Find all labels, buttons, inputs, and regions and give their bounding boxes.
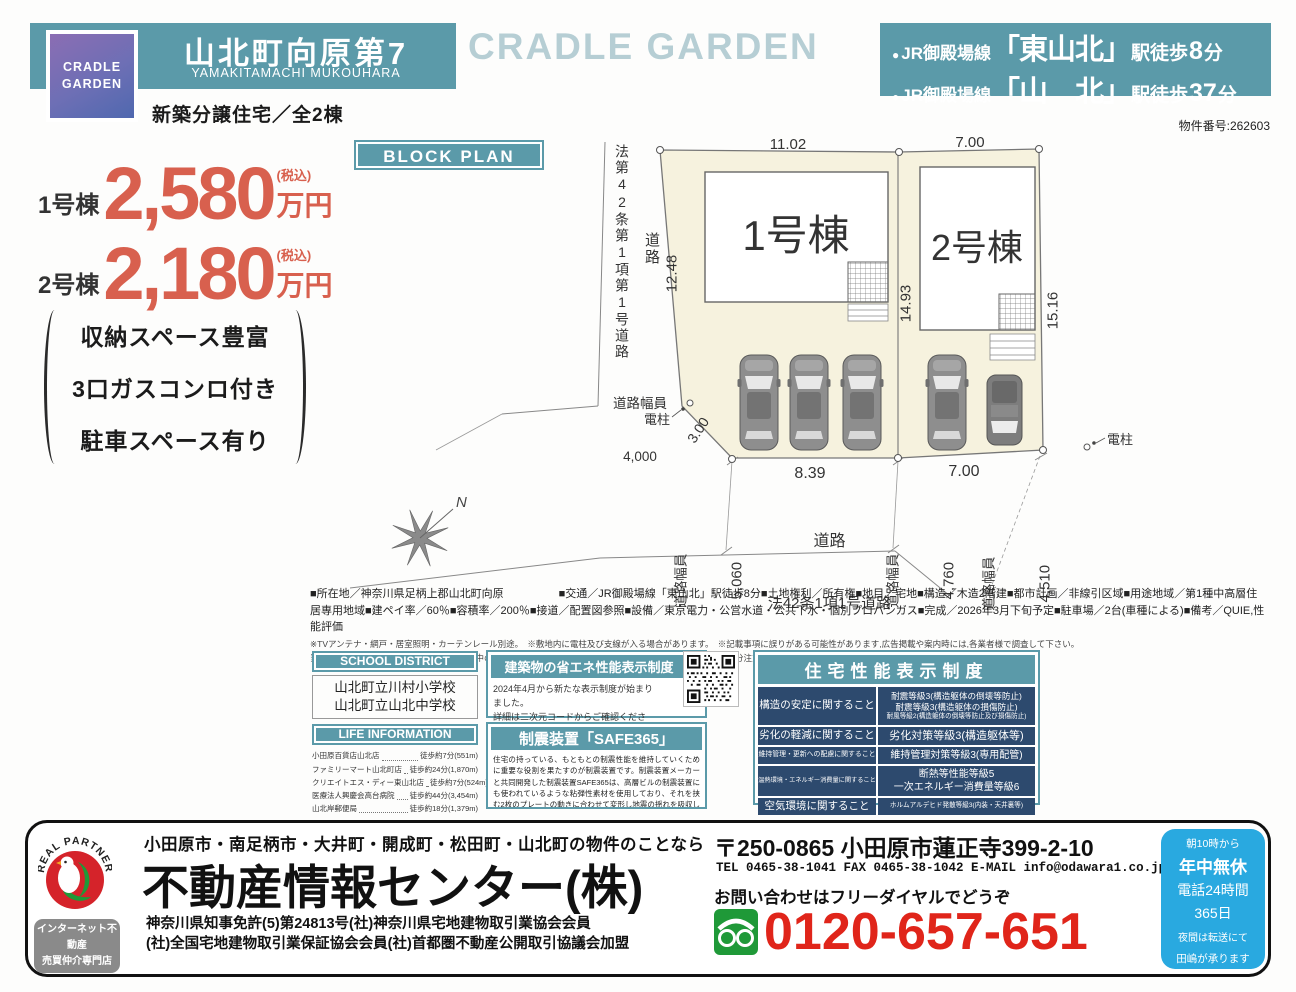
life-item-name: 山北岸郵便局: [312, 802, 357, 815]
life-item-value: 徒歩約7分(524m): [430, 776, 488, 789]
dotted-leader: [426, 786, 428, 787]
car-icon: [987, 375, 1022, 445]
performance-category: 空気環境に関すること: [758, 798, 876, 815]
page-title-romaji: YAMAKITAMACHI MUKOUHARA: [150, 66, 442, 80]
property-note-1: ※TVアンテナ・網戸・居室照明・カーテンレール別途。 ※敷地内に電柱及び支線が入…: [310, 638, 1268, 650]
cradle-garden-logo: CRADLE GARDEN: [46, 30, 138, 122]
seismic-device-body: 住宅の持っている、もともとの制震性能を維持していくために重要な役割を果たすのが制…: [488, 753, 705, 809]
flyer-page: CRADLE GARDEN 山北町向原第7 YAMAKITAMACHI MUKO…: [0, 0, 1296, 992]
building-2-label: 2号棟: [931, 227, 1023, 268]
features-box: 収納スペース豊富 3口ガスコンロ付き 駐車スペース有り: [44, 310, 306, 464]
dotted-leader: [404, 773, 408, 774]
utility-pole-right: [1084, 438, 1105, 450]
seismic-device-header: 制震装置「SAFE365」: [491, 727, 702, 750]
performance-value: 劣化対策等級3(構造躯体等): [878, 727, 1035, 745]
logo-text-line1: CRADLE: [63, 59, 121, 76]
performance-value: ホルムアルデヒド発散等級3(内装・天井裏等): [878, 798, 1035, 815]
company-name: 不動産情報センター(株): [142, 849, 643, 918]
life-information-list: 小田原百貨店山北店徒歩約7分(551m) ファミリーマート山北町店徒歩約24分(…: [312, 749, 478, 815]
dimension-14-93: 14.93: [898, 264, 915, 344]
life-item-name: 小田原百貨店山北店: [312, 749, 380, 762]
dimension-7-00-bottom: 7.00: [922, 463, 1006, 481]
life-item-value: 徒歩約18分(1,379m): [410, 802, 478, 815]
performance-category: 劣化の軽減に関すること: [758, 727, 876, 745]
dimension-11-02: 11.02: [745, 136, 831, 153]
dimension-8-39: 8.39: [768, 465, 852, 483]
life-item-value: 徒歩約24分(1,870m): [410, 763, 478, 776]
road-vertical-label: 道路: [641, 232, 662, 266]
property-number: 物件番号:262603: [1100, 117, 1270, 134]
access-line-1: ● JR御殿場線 「東山北」 駅徒歩 8 分: [892, 26, 1271, 68]
block-plan: 1号棟 2号棟: [350, 138, 1160, 598]
hours-line: 電話24時間: [1161, 880, 1265, 900]
tax-note: (税込): [277, 165, 312, 184]
logo-gradient-square: CRADLE GARDEN: [50, 34, 134, 118]
housing-performance-table: 構造の安定に関すること 耐震等級3(構造躯体の倒壊等防止) 耐震等級3(構造躯体…: [758, 687, 1035, 815]
life-item: 小田原百貨店山北店徒歩約7分(551m): [312, 749, 478, 762]
life-item-name: クリエイトエス・ディー東山北店: [312, 776, 424, 789]
building-2-porch-hatch: [999, 294, 1035, 330]
right-parenthesis: [285, 310, 306, 464]
life-item-value: 徒歩約44分(3,454m): [410, 789, 478, 802]
life-item-value: 徒歩約7分(551m): [420, 749, 478, 762]
school-district-box: SCHOOL DISTRICT 山北町立川村小学校 山北町立山北中学校 LIFE…: [312, 651, 478, 815]
performance-category: 維持管理・更新への配慮に関すること: [758, 747, 876, 764]
business-hours-box: 朝10時から 年中無休 電話24時間 365日 夜間は転送にて 田嶋が承ります: [1161, 829, 1265, 969]
freedial-number: 0120-657-651: [764, 906, 1088, 958]
car-icon: [788, 355, 831, 450]
feature-item: 収納スペース豊富: [65, 318, 285, 352]
performance-category: 温熱環境・エネルギー消費量に関すること: [758, 766, 876, 796]
life-item: 山北岸郵便局徒歩約18分(1,379m): [312, 802, 478, 815]
life-item: クリエイトエス・ディー東山北店徒歩約7分(524m): [312, 776, 478, 789]
bullet-icon: ●: [892, 90, 899, 104]
station-name: 「東山北」: [991, 26, 1131, 68]
feature-item: 駐車スペース有り: [65, 422, 285, 456]
performance-value: 耐震等級3(構造躯体の倒壊等防止) 耐震等級3(構造躯体の損傷防止) 耐風等級2…: [878, 687, 1035, 725]
walk-suffix: 分: [1218, 80, 1237, 107]
building-name: 2号棟: [38, 265, 103, 308]
dimension-7-00-top: 7.00: [928, 134, 1012, 151]
performance-value: 維持管理対策等級3(専用配管): [878, 747, 1035, 764]
price-unit: 万円: [277, 264, 333, 304]
dimension-12-48: 12.48: [664, 234, 681, 314]
qr-code: [683, 651, 739, 707]
building-1-label: 1号棟: [742, 212, 849, 259]
dotted-leader: [359, 812, 408, 813]
pole-left-label: 電柱: [644, 409, 670, 428]
walk-minutes: 37: [1188, 79, 1218, 108]
school-item: 山北町立川村小学校: [313, 679, 477, 697]
housing-performance-header: 住宅性能表示制度: [758, 655, 1035, 684]
property-specs-text: ■所在地／神奈川県足柄上郡山北町向原 ■交通／JR御殿場線「東山北」駅徒歩8分■…: [310, 586, 1268, 636]
building-name: 1号棟: [38, 185, 103, 228]
badge-line: 売買仲介専門店: [34, 954, 120, 970]
hours-line: 年中無休: [1161, 853, 1265, 878]
compass-icon: N: [392, 494, 467, 566]
logo-text-line2: GARDEN: [62, 76, 122, 93]
life-item-name: 医療法人興慶会高台病院: [312, 789, 395, 802]
company-footer: REAL PARTNER インターネット不動産 売買仲介専門店 小田原市・南足柄…: [25, 820, 1271, 977]
hours-line: 365日: [1161, 903, 1265, 923]
dotted-leader: [397, 799, 408, 800]
dimension-15-16: 15.16: [1045, 271, 1062, 351]
internet-realestate-badge: インターネット不動産 売買仲介専門店: [34, 919, 120, 973]
energy-body-line: 2024年4月から新たな表示制度が始まりました。: [493, 683, 661, 711]
road-width-4000-label: 道路幅員 4,000: [598, 360, 682, 500]
walk-label: 駅徒歩: [1131, 38, 1188, 65]
block-plan-title: BLOCK PLAN: [354, 140, 544, 170]
price-unit: 万円: [277, 184, 333, 224]
car-icon: [738, 355, 781, 450]
seismic-device-box: 制震装置「SAFE365」 住宅の持っている、もともとの制震性能を維持していくた…: [486, 722, 707, 809]
license-line-1: 神奈川県知事免許(5)第24813号(社)神奈川県宅地建物取引業協会会員: [146, 915, 629, 935]
performance-value: 断熱等性能等級5 一次エネルギー消費量等級6: [878, 766, 1035, 796]
hours-line: 田嶋が承ります: [1161, 951, 1265, 966]
school-district-header: SCHOOL DISTRICT: [312, 651, 478, 672]
price-row-2: 2号棟 2,180 (税込) 万円: [38, 232, 348, 308]
freedial-row: 0120-657-651: [714, 906, 1088, 958]
life-item-name: ファミリーマート山北町店: [312, 763, 402, 776]
left-parenthesis: [44, 310, 65, 464]
walk-suffix: 分: [1204, 38, 1223, 65]
housing-performance-box: 住宅性能表示制度 構造の安定に関すること 耐震等級3(構造躯体の倒壊等防止) 耐…: [753, 650, 1040, 805]
station-name: 「山 北」: [991, 68, 1131, 110]
badge-line: インターネット不動産: [34, 922, 120, 954]
life-information-header: LIFE INFORMATION: [312, 724, 478, 745]
walk-minutes: 8: [1188, 37, 1204, 66]
header-band-right: ● JR御殿場線 「東山北」 駅徒歩 8 分 ● JR御殿場線 「山 北」 駅徒…: [880, 23, 1271, 96]
rail-line-name: JR御殿場線: [901, 81, 991, 106]
energy-performance-box: 建築物の省エネ性能表示制度 2024年4月から新たな表示制度が始まりました。 詳…: [486, 650, 707, 718]
walk-label: 駅徒歩: [1131, 80, 1188, 107]
company-address: 〒250-0865 小田原市蓮正寺399-2-10: [714, 829, 1094, 863]
road-law-vertical-label: 法第42条第1項第1号道路: [612, 144, 632, 360]
compass-north-label: N: [456, 494, 467, 511]
performance-category: 構造の安定に関すること: [758, 687, 876, 725]
access-line-2: ● JR御殿場線 「山 北」 駅徒歩 37 分: [892, 68, 1271, 110]
contact-line: TEL 0465-38-1041 FAX 0465-38-1042 E-MAIL…: [716, 861, 1166, 875]
rail-line-name: JR御殿場線: [901, 39, 991, 64]
tax-note: (税込): [277, 245, 312, 264]
life-item: 医療法人興慶会高台病院徒歩約44分(3,454m): [312, 789, 478, 802]
school-list: 山北町立川村小学校 山北町立山北中学校: [312, 675, 478, 719]
dotted-leader: [382, 760, 419, 761]
feature-item: 3口ガスコンロ付き: [65, 370, 285, 404]
price-amount: 2,180: [103, 240, 273, 308]
page-subtitle: 新築分譲住宅／全2棟: [152, 100, 344, 127]
bullet-icon: ●: [892, 48, 899, 62]
price-amount: 2,580: [103, 160, 273, 228]
price-row-1: 1号棟 2,580 (税込) 万円: [38, 152, 348, 228]
road-width-value: 4,000: [598, 448, 682, 466]
freedial-icon: [714, 909, 758, 955]
pole-right-label: 電柱: [1107, 429, 1133, 448]
license-info: 神奈川県知事免許(5)第24813号(社)神奈川県宅地建物取引業協会会員 (社)…: [146, 915, 629, 954]
car-icon: [841, 355, 884, 450]
real-partner-logo: REAL PARTNER: [38, 827, 112, 913]
brand-watermark: CRADLE GARDEN: [468, 26, 808, 68]
life-item: ファミリーマート山北町店徒歩約24分(1,870m): [312, 763, 478, 776]
license-line-2: (社)全国宅地建物取引業保証協会会員(社)首都圏不動産公開取引協議会加盟: [146, 935, 629, 955]
building-1-porch-hatch: [848, 262, 888, 302]
hours-line: 朝10時から: [1161, 836, 1265, 851]
energy-performance-header: 建築物の省エネ性能表示制度: [491, 655, 687, 678]
hours-line: 夜間は転送にて: [1161, 929, 1265, 944]
car-icon: [926, 355, 969, 450]
school-item: 山北町立山北中学校: [313, 697, 477, 715]
